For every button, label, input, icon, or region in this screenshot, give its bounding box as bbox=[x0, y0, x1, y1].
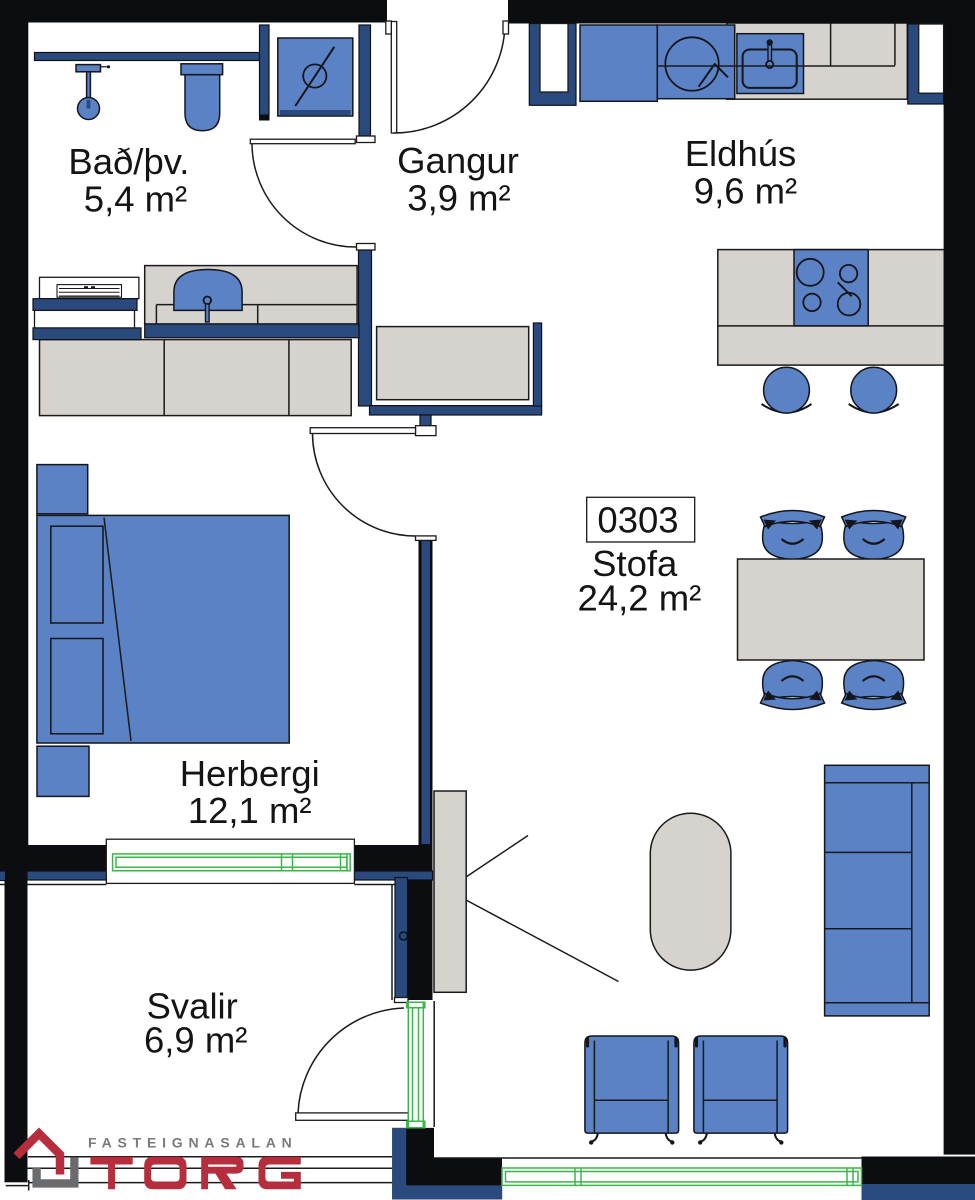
svg-text:12,1 m²: 12,1 m² bbox=[188, 790, 312, 831]
svg-text:Bað/þv.: Bað/þv. bbox=[68, 141, 189, 182]
svg-text:9,6 m²: 9,6 m² bbox=[694, 171, 797, 212]
svg-text:Eldhús: Eldhús bbox=[685, 133, 797, 174]
svg-text:24,2 m²: 24,2 m² bbox=[578, 578, 702, 619]
svg-text:5,4 m²: 5,4 m² bbox=[84, 179, 187, 220]
svg-text:Herbergi: Herbergi bbox=[180, 753, 320, 794]
svg-text:0303: 0303 bbox=[597, 500, 678, 541]
svg-text:FASTEIGNASALAN: FASTEIGNASALAN bbox=[88, 1135, 298, 1151]
svg-text:3,9 m²: 3,9 m² bbox=[407, 178, 510, 219]
svg-text:6,9 m²: 6,9 m² bbox=[144, 1020, 247, 1061]
svg-text:Gangur: Gangur bbox=[397, 140, 519, 181]
